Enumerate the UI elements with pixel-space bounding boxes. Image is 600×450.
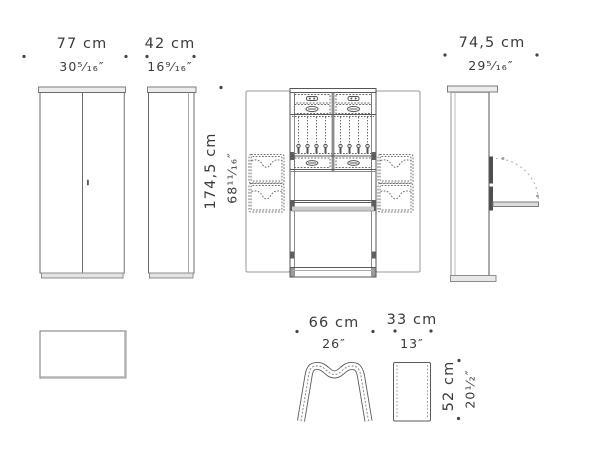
stool-depth-cm-label: 33 cm	[362, 312, 462, 328]
stool-depth-inch-label: 13″	[362, 336, 462, 351]
wardrobe-top-view-drawing	[40, 331, 126, 378]
stool-front-view-drawing	[301, 366, 369, 421]
wardrobe-depth-cm-label: 42 cm	[120, 36, 220, 52]
wardrobe-height-cm-label: 174,5 cm	[203, 132, 219, 209]
fold-down-flap-open	[493, 202, 539, 207]
stool-height-inch-label: 20¹⁄₂″	[463, 369, 478, 408]
technical-drawing-sheet: 77 cm 30⁵⁄₁₆″ 42 cm 16⁹⁄₁₆″ 174,5 cm 68¹…	[0, 0, 600, 450]
stool-height-cm-label: 52 cm	[441, 361, 457, 412]
wardrobe-depth-inch-label: 16⁹⁄₁₆″	[120, 59, 220, 74]
wardrobe-side-view-drawing	[148, 87, 197, 278]
wardrobe-width-cm-label: 77 cm	[32, 36, 132, 52]
keyhole-icon	[87, 180, 89, 186]
wardrobe-width-inch-label: 30⁵⁄₁₆″	[32, 59, 132, 74]
secretary-open-front-view-drawing	[246, 89, 420, 278]
secretary-open-side-view-drawing	[448, 86, 539, 282]
wardrobe-height-inch-label: 68¹¹⁄₁₆″	[225, 152, 240, 204]
open-depth-cm-label: 74,5 cm	[442, 35, 542, 51]
wardrobe-front-view-drawing	[39, 87, 126, 278]
stool-side-view-drawing	[394, 363, 431, 422]
flap-swing-arc	[496, 157, 539, 201]
open-depth-inch-label: 29⁵⁄₁₆″	[441, 58, 541, 73]
